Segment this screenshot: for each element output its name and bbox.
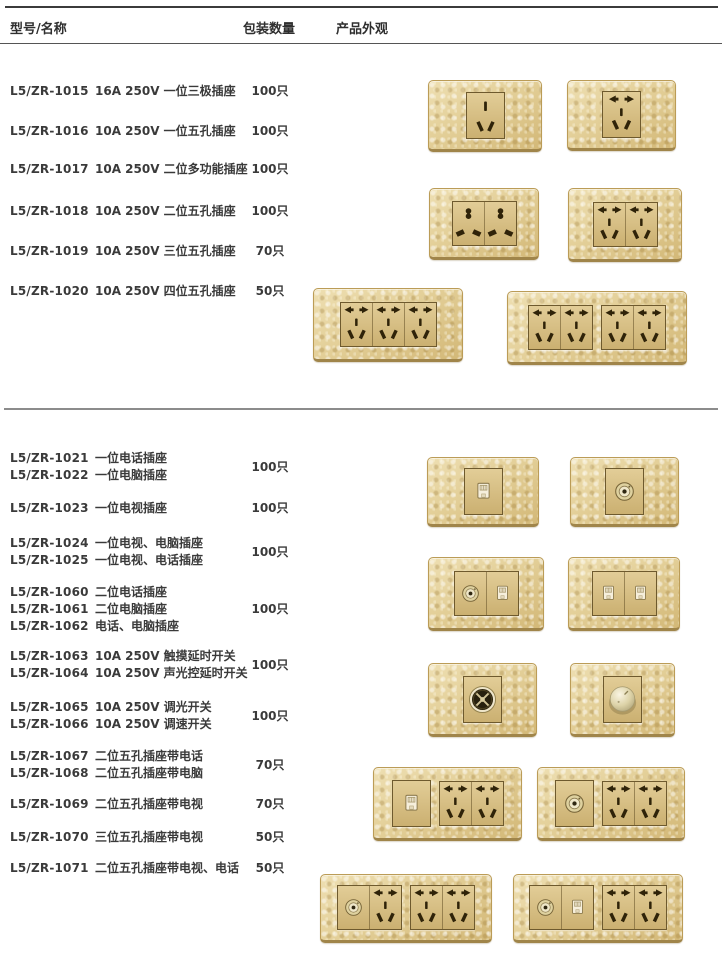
plate-tv-phone-plus-2x5hole bbox=[513, 874, 683, 943]
product-code: L5/ZR-1065 bbox=[10, 700, 95, 714]
plate-face bbox=[314, 289, 462, 359]
product-group: L5/ZR-106510A 250V 调光开关L5/ZR-106610A 250… bbox=[10, 698, 295, 732]
model-lines: L5/ZR-1023一位电视插座 bbox=[10, 499, 245, 516]
plate-face bbox=[429, 664, 536, 734]
plate-face bbox=[569, 189, 681, 259]
socket-5hole-icon bbox=[341, 303, 372, 346]
socket-5hole-icon bbox=[404, 303, 436, 346]
rj-jack-icon bbox=[486, 572, 518, 615]
plate-face bbox=[568, 81, 675, 148]
package-qty: 70只 bbox=[245, 242, 295, 259]
socket-5hole-icon bbox=[529, 306, 560, 349]
package-qty: 50只 bbox=[245, 859, 295, 876]
product-row: L5/ZR-106310A 250V 触摸延时开关 bbox=[10, 647, 245, 664]
product-row: L5/ZR-1071二位五孔插座带电视、电话 bbox=[10, 859, 245, 876]
product-name: 10A 250V 二位多功能插座 bbox=[95, 160, 245, 177]
top-rule bbox=[5, 6, 718, 8]
product-group: L5/ZR-101516A 250V 一位三极插座100只 bbox=[10, 82, 295, 99]
product-code: L5/ZR-1061 bbox=[10, 602, 95, 616]
package-qty: 50只 bbox=[245, 828, 295, 845]
product-code: L5/ZR-1023 bbox=[10, 501, 95, 515]
socket-5hole-icon bbox=[594, 203, 625, 246]
tv-coax-icon bbox=[606, 469, 643, 514]
package-qty: 70只 bbox=[245, 756, 295, 773]
socket-3pin-icon bbox=[467, 93, 504, 138]
model-lines: L5/ZR-101610A 250V 一位五孔插座 bbox=[10, 122, 245, 139]
product-row: L5/ZR-101710A 250V 二位多功能插座 bbox=[10, 160, 245, 177]
package-qty: 100只 bbox=[245, 122, 295, 139]
package-qty: 100只 bbox=[245, 707, 295, 724]
module-frame bbox=[392, 780, 431, 827]
module-frame bbox=[454, 571, 519, 616]
plate-phone-socket bbox=[427, 457, 539, 527]
package-qty: 100只 bbox=[245, 499, 295, 516]
product-name: 10A 250V 三位五孔插座 bbox=[95, 242, 245, 259]
module-frame bbox=[340, 302, 437, 347]
plate-3gang-5hole-socket bbox=[313, 288, 463, 362]
plate-face bbox=[538, 768, 684, 838]
plate-2gang-phone-socket bbox=[568, 557, 680, 631]
socket-5hole-icon bbox=[560, 306, 592, 349]
product-name: 16A 250V 一位三极插座 bbox=[95, 82, 245, 99]
product-code: L5/ZR-1015 bbox=[10, 84, 95, 98]
plate-face bbox=[514, 875, 682, 940]
product-code: L5/ZR-1025 bbox=[10, 553, 95, 567]
socket-5hole-icon bbox=[372, 303, 404, 346]
product-row: L5/ZR-102010A 250V 四位五孔插座 bbox=[10, 282, 245, 299]
product-row: L5/ZR-101516A 250V 一位三极插座 bbox=[10, 82, 245, 99]
socket-universal-icon bbox=[484, 202, 516, 245]
dimmer-knob-icon bbox=[604, 677, 641, 722]
product-row: L5/ZR-1070三位五孔插座带电视 bbox=[10, 828, 245, 845]
product-group: L5/ZR-1070三位五孔插座带电视50只 bbox=[10, 828, 295, 845]
product-name: 一位电视、电脑插座 bbox=[95, 534, 245, 551]
model-lines: L5/ZR-102010A 250V 四位五孔插座 bbox=[10, 282, 245, 299]
tv-coax-icon bbox=[530, 886, 561, 929]
module-frame bbox=[463, 676, 502, 723]
product-name: 10A 250V 四位五孔插座 bbox=[95, 282, 245, 299]
plate-1gang-3pin-socket bbox=[428, 80, 542, 152]
socket-5hole-icon bbox=[471, 782, 503, 825]
plate-face bbox=[321, 875, 491, 940]
product-group: L5/ZR-1069二位五孔插座带电视70只 bbox=[10, 795, 295, 812]
product-name: 10A 250V 调光开关 bbox=[95, 698, 245, 715]
rj-jack-icon bbox=[624, 572, 656, 615]
product-row: L5/ZR-1069二位五孔插座带电视 bbox=[10, 795, 245, 812]
product-code: L5/ZR-1070 bbox=[10, 830, 95, 844]
product-group: L5/ZR-1024一位电视、电脑插座L5/ZR-1025一位电视、电话插座10… bbox=[10, 534, 295, 568]
model-lines: L5/ZR-101710A 250V 二位多功能插座 bbox=[10, 160, 245, 177]
product-name: 电话、电脑插座 bbox=[95, 617, 245, 634]
product-row: L5/ZR-1023一位电视插座 bbox=[10, 499, 245, 516]
model-lines: L5/ZR-1021一位电话插座L5/ZR-1022一位电脑插座 bbox=[10, 449, 245, 483]
module-frame bbox=[410, 885, 475, 930]
product-name: 10A 250V 二位五孔插座 bbox=[95, 202, 245, 219]
module-frame bbox=[439, 781, 504, 826]
socket-5hole-icon bbox=[602, 306, 633, 349]
socket-5hole-icon bbox=[625, 203, 657, 246]
socket-5hole-icon bbox=[634, 886, 666, 929]
header-model-name: 型号/名称 bbox=[10, 18, 67, 37]
product-name: 二位五孔插座带电话 bbox=[95, 747, 245, 764]
plate-tv-plus-2x5hole bbox=[537, 767, 685, 841]
plate-tv-plus-3x5hole bbox=[320, 874, 492, 943]
product-code: L5/ZR-1022 bbox=[10, 468, 95, 482]
plate-touch-delay-switch bbox=[428, 663, 537, 737]
socket-5hole-icon bbox=[634, 782, 666, 825]
socket-5hole-icon bbox=[603, 886, 634, 929]
product-code: L5/ZR-1018 bbox=[10, 204, 95, 218]
product-row: L5/ZR-101910A 250V 三位五孔插座 bbox=[10, 242, 245, 259]
socket-5hole-icon bbox=[442, 886, 474, 929]
product-group: L5/ZR-101910A 250V 三位五孔插座70只 bbox=[10, 242, 295, 259]
product-code: L5/ZR-1060 bbox=[10, 585, 95, 599]
product-name: 一位电视、电话插座 bbox=[95, 551, 245, 568]
plate-face bbox=[571, 458, 678, 524]
model-lines: L5/ZR-1060二位电话插座L5/ZR-1061二位电脑插座L5/ZR-10… bbox=[10, 583, 245, 634]
module-frame bbox=[337, 885, 402, 930]
plate-face bbox=[428, 458, 538, 524]
tv-coax-icon bbox=[556, 781, 593, 826]
product-row: L5/ZR-1022一位电脑插座 bbox=[10, 466, 245, 483]
socket-5hole-icon bbox=[369, 886, 401, 929]
plate-face bbox=[374, 768, 521, 838]
product-name: 二位五孔插座带电视 bbox=[95, 795, 245, 812]
product-group: L5/ZR-1023一位电视插座100只 bbox=[10, 499, 295, 516]
product-group: L5/ZR-102010A 250V 四位五孔插座50只 bbox=[10, 282, 295, 299]
product-code: L5/ZR-1066 bbox=[10, 717, 95, 731]
module-frame bbox=[592, 571, 657, 616]
model-lines: L5/ZR-106510A 250V 调光开关L5/ZR-106610A 250… bbox=[10, 698, 245, 732]
product-row: L5/ZR-1067二位五孔插座带电话 bbox=[10, 747, 245, 764]
package-qty: 100只 bbox=[245, 202, 295, 219]
module-frame bbox=[602, 885, 667, 930]
plate-face bbox=[430, 189, 538, 257]
product-name: 二位五孔插座带电脑 bbox=[95, 764, 245, 781]
product-name: 一位电话插座 bbox=[95, 449, 245, 466]
product-name: 二位电话插座 bbox=[95, 583, 245, 600]
model-lines: L5/ZR-1067二位五孔插座带电话L5/ZR-1068二位五孔插座带电脑 bbox=[10, 747, 245, 781]
module-frame bbox=[605, 468, 644, 515]
module-frame bbox=[601, 305, 666, 350]
model-lines: L5/ZR-101910A 250V 三位五孔插座 bbox=[10, 242, 245, 259]
section-divider bbox=[4, 408, 718, 410]
tv-coax-icon bbox=[455, 572, 486, 615]
module-frame bbox=[466, 92, 505, 139]
product-row: L5/ZR-106410A 250V 声光控延时开关 bbox=[10, 664, 245, 681]
product-name: 10A 250V 声光控延时开关 bbox=[95, 664, 245, 681]
product-row: L5/ZR-101810A 250V 二位五孔插座 bbox=[10, 202, 245, 219]
touch-switch-icon bbox=[464, 677, 501, 722]
product-code: L5/ZR-1021 bbox=[10, 451, 95, 465]
product-name: 10A 250V 调速开关 bbox=[95, 715, 245, 732]
product-group: L5/ZR-101610A 250V 一位五孔插座100只 bbox=[10, 122, 295, 139]
product-row: L5/ZR-1024一位电视、电脑插座 bbox=[10, 534, 245, 551]
product-group: L5/ZR-1071二位五孔插座带电视、电话50只 bbox=[10, 859, 295, 876]
product-code: L5/ZR-1019 bbox=[10, 244, 95, 258]
product-name: 三位五孔插座带电视 bbox=[95, 828, 245, 845]
rj-jack-icon bbox=[593, 572, 624, 615]
module-frame bbox=[464, 468, 503, 515]
socket-universal-icon bbox=[453, 202, 484, 245]
model-lines: L5/ZR-106310A 250V 触摸延时开关L5/ZR-106410A 2… bbox=[10, 647, 245, 681]
model-lines: L5/ZR-1070三位五孔插座带电视 bbox=[10, 828, 245, 845]
product-code: L5/ZR-1024 bbox=[10, 536, 95, 550]
product-row: L5/ZR-1062电话、电脑插座 bbox=[10, 617, 245, 634]
rj-jack-icon bbox=[393, 781, 430, 826]
package-qty: 100只 bbox=[245, 600, 295, 617]
socket-5hole-icon bbox=[440, 782, 471, 825]
catalog-page: 型号/名称 包装数量 产品外观 L5/ZR-101516A 250V 一位三极插… bbox=[0, 0, 722, 967]
plate-dimmer-switch bbox=[570, 663, 675, 737]
product-name: 二位电脑插座 bbox=[95, 600, 245, 617]
header-product-appearance: 产品外观 bbox=[336, 18, 388, 37]
package-qty: 100只 bbox=[245, 543, 295, 560]
header-package-qty: 包装数量 bbox=[243, 18, 295, 37]
plate-4gang-5hole-socket bbox=[507, 291, 687, 365]
product-row: L5/ZR-1061二位电脑插座 bbox=[10, 600, 245, 617]
product-code: L5/ZR-1069 bbox=[10, 797, 95, 811]
plate-face bbox=[508, 292, 686, 362]
plate-tv-computer-socket bbox=[428, 557, 544, 631]
product-code: L5/ZR-1071 bbox=[10, 861, 95, 875]
module-frame bbox=[529, 885, 594, 930]
product-row: L5/ZR-1068二位五孔插座带电脑 bbox=[10, 764, 245, 781]
model-lines: L5/ZR-101516A 250V 一位三极插座 bbox=[10, 82, 245, 99]
product-code: L5/ZR-1064 bbox=[10, 666, 95, 680]
socket-5hole-icon bbox=[411, 886, 442, 929]
rj-jack-icon bbox=[561, 886, 593, 929]
product-row: L5/ZR-106610A 250V 调速开关 bbox=[10, 715, 245, 732]
product-row: L5/ZR-106510A 250V 调光开关 bbox=[10, 698, 245, 715]
product-group: L5/ZR-1060二位电话插座L5/ZR-1061二位电脑插座L5/ZR-10… bbox=[10, 583, 295, 634]
package-qty: 70只 bbox=[245, 795, 295, 812]
product-name: 二位五孔插座带电视、电话 bbox=[95, 859, 245, 876]
package-qty: 100只 bbox=[245, 82, 295, 99]
plate-face bbox=[571, 664, 674, 734]
package-qty: 100只 bbox=[245, 656, 295, 673]
socket-5hole-icon bbox=[603, 782, 634, 825]
product-row: L5/ZR-1025一位电视、电话插座 bbox=[10, 551, 245, 568]
socket-5hole-icon bbox=[633, 306, 665, 349]
plate-tv-socket bbox=[570, 457, 679, 527]
plate-2gang-5hole-socket bbox=[568, 188, 682, 262]
module-frame bbox=[528, 305, 593, 350]
product-code: L5/ZR-1063 bbox=[10, 649, 95, 663]
socket-5hole-icon bbox=[603, 92, 640, 137]
plate-face bbox=[429, 81, 541, 149]
module-frame bbox=[593, 202, 658, 247]
tv-coax-icon bbox=[338, 886, 369, 929]
product-name: 10A 250V 触摸延时开关 bbox=[95, 647, 245, 664]
module-frame bbox=[452, 201, 517, 246]
product-name: 一位电视插座 bbox=[95, 499, 245, 516]
product-code: L5/ZR-1062 bbox=[10, 619, 95, 633]
product-name: 10A 250V 一位五孔插座 bbox=[95, 122, 245, 139]
product-code: L5/ZR-1067 bbox=[10, 749, 95, 763]
rj-jack-icon bbox=[465, 469, 502, 514]
plate-face bbox=[569, 558, 679, 628]
model-lines: L5/ZR-1069二位五孔插座带电视 bbox=[10, 795, 245, 812]
product-group: L5/ZR-101810A 250V 二位五孔插座100只 bbox=[10, 202, 295, 219]
plate-1gang-5hole-socket bbox=[567, 80, 676, 151]
product-code: L5/ZR-1068 bbox=[10, 766, 95, 780]
package-qty: 100只 bbox=[245, 160, 295, 177]
module-frame bbox=[602, 781, 667, 826]
model-lines: L5/ZR-1071二位五孔插座带电视、电话 bbox=[10, 859, 245, 876]
module-frame bbox=[555, 780, 594, 827]
product-group: L5/ZR-101710A 250V 二位多功能插座100只 bbox=[10, 160, 295, 177]
product-name: 一位电脑插座 bbox=[95, 466, 245, 483]
header-underline bbox=[0, 43, 722, 44]
product-code: L5/ZR-1017 bbox=[10, 162, 95, 176]
module-frame bbox=[603, 676, 642, 723]
package-qty: 100只 bbox=[245, 458, 295, 475]
product-row: L5/ZR-1021一位电话插座 bbox=[10, 449, 245, 466]
plate-face bbox=[429, 558, 543, 628]
product-group: L5/ZR-106310A 250V 触摸延时开关L5/ZR-106410A 2… bbox=[10, 647, 295, 681]
product-group: L5/ZR-1021一位电话插座L5/ZR-1022一位电脑插座100只 bbox=[10, 449, 295, 483]
model-lines: L5/ZR-1024一位电视、电脑插座L5/ZR-1025一位电视、电话插座 bbox=[10, 534, 245, 568]
product-code: L5/ZR-1016 bbox=[10, 124, 95, 138]
product-row: L5/ZR-101610A 250V 一位五孔插座 bbox=[10, 122, 245, 139]
package-qty: 50只 bbox=[245, 282, 295, 299]
module-frame bbox=[602, 91, 641, 138]
product-code: L5/ZR-1020 bbox=[10, 284, 95, 298]
plate-2gang-universal-socket bbox=[429, 188, 539, 260]
product-row: L5/ZR-1060二位电话插座 bbox=[10, 583, 245, 600]
model-lines: L5/ZR-101810A 250V 二位五孔插座 bbox=[10, 202, 245, 219]
product-group: L5/ZR-1067二位五孔插座带电话L5/ZR-1068二位五孔插座带电脑70… bbox=[10, 747, 295, 781]
plate-phone-plus-2x5hole bbox=[373, 767, 522, 841]
